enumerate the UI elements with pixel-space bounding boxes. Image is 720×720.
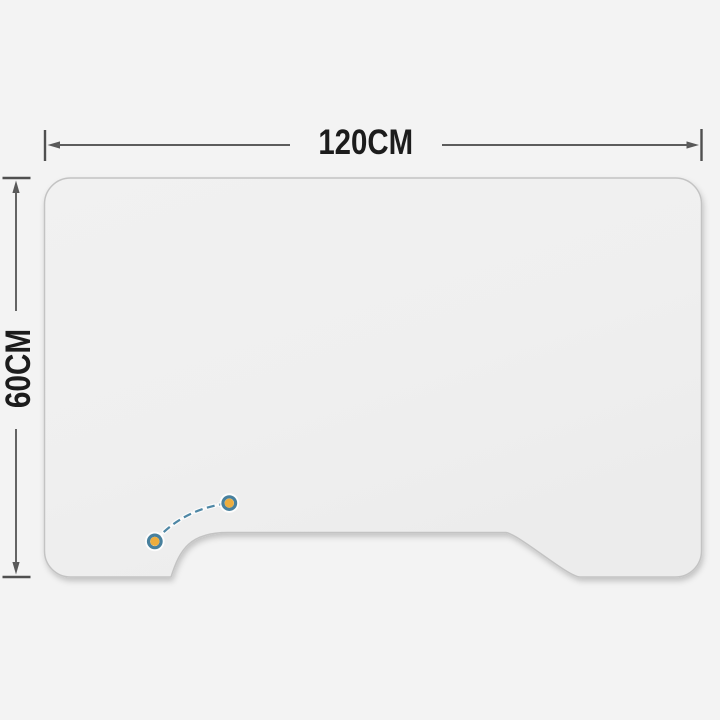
svg-text:120CM: 120CM (318, 122, 413, 161)
svg-text:60CM: 60CM (0, 329, 37, 408)
